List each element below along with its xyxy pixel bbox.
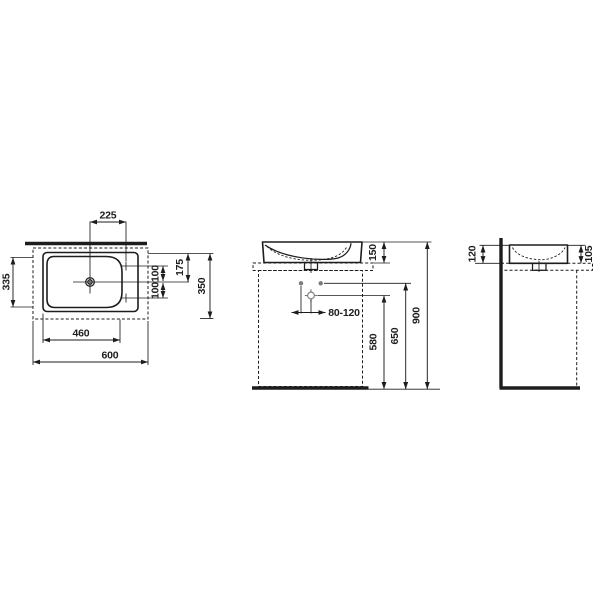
dimension-105-label: 105 — [583, 245, 595, 262]
technical-drawing-page: 225 335 100 100 175 350 460 600 — [0, 0, 600, 600]
dimension-335-label: 335 — [1, 273, 13, 290]
bowl-front-curve — [265, 243, 351, 259]
front-view: 80-120 150 580 650 900 — [252, 242, 440, 389]
dimension-600-label: 600 — [102, 350, 119, 362]
washbasin-drawing: 225 335 100 100 175 350 460 600 — [0, 0, 600, 600]
dimension-225-label: 225 — [100, 210, 117, 222]
dimension-120-label: 120 — [467, 245, 479, 262]
fixing-bolt-dot-right — [319, 281, 323, 285]
side-view: 120 105 — [467, 238, 596, 388]
dimension-460-label: 460 — [73, 328, 90, 340]
cabinet-dashed — [259, 271, 363, 387]
dimension-100-upper-label: 100 — [150, 265, 162, 282]
dimension-80-120-label: 80-120 — [328, 307, 360, 319]
top-view: 225 335 100 100 175 350 460 600 — [1, 210, 214, 366]
countertop-side-dashed — [501, 263, 593, 270]
dimension-150-label: 150 — [367, 244, 379, 261]
dimension-100-lower-label: 100 — [150, 282, 162, 299]
bowl-side-hidden-line — [513, 248, 566, 260]
fixing-bolt-dot-left — [299, 281, 303, 285]
dimension-650-label: 650 — [389, 327, 401, 344]
dimension-580-label: 580 — [368, 333, 380, 350]
dimension-350-label: 350 — [196, 277, 208, 294]
dimension-175-label: 175 — [174, 259, 186, 276]
dimension-900-label: 900 — [411, 307, 423, 324]
